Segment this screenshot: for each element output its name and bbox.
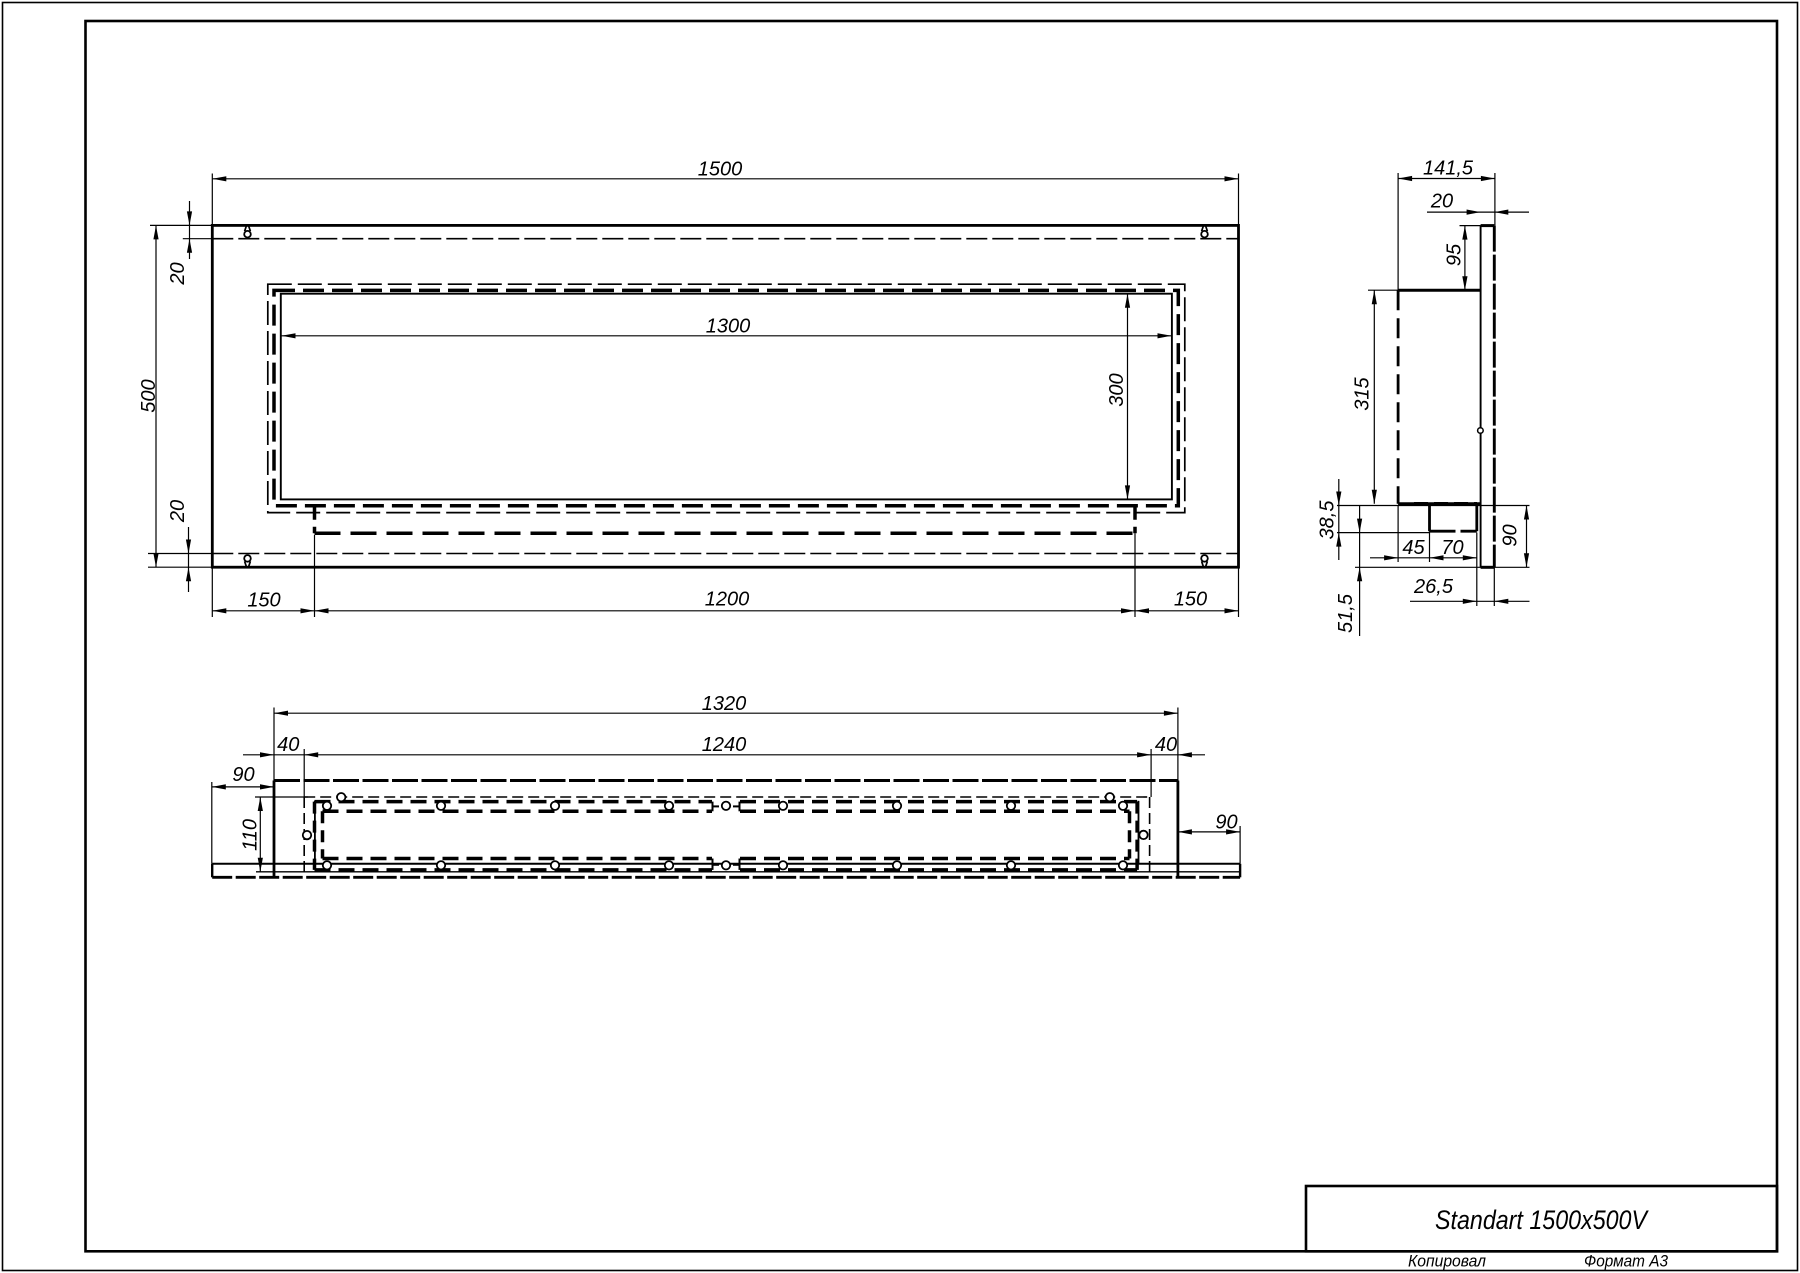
svg-text:90: 90	[1500, 524, 1522, 546]
svg-text:Копировал: Копировал	[1408, 1253, 1486, 1271]
svg-text:40: 40	[1155, 734, 1177, 756]
svg-text:20: 20	[1430, 190, 1453, 212]
svg-text:500: 500	[138, 379, 160, 412]
svg-text:90: 90	[1215, 812, 1237, 834]
svg-text:26,5: 26,5	[1413, 576, 1454, 598]
svg-text:51,5: 51,5	[1335, 593, 1357, 633]
svg-text:1300: 1300	[706, 316, 751, 338]
svg-text:315: 315	[1352, 376, 1374, 410]
svg-text:300: 300	[1106, 373, 1128, 406]
svg-text:70: 70	[1441, 537, 1463, 559]
svg-text:20: 20	[167, 500, 189, 523]
svg-text:150: 150	[247, 590, 280, 612]
svg-text:1320: 1320	[702, 693, 747, 715]
svg-text:150: 150	[1174, 588, 1207, 610]
svg-text:Формат А3: Формат А3	[1584, 1253, 1669, 1271]
svg-text:1500: 1500	[698, 158, 743, 180]
svg-text:45: 45	[1402, 537, 1425, 559]
svg-text:1200: 1200	[705, 588, 750, 610]
svg-text:Standart 1500x500V: Standart 1500x500V	[1435, 1205, 1650, 1235]
svg-text:141,5: 141,5	[1423, 157, 1474, 179]
svg-text:95: 95	[1444, 243, 1466, 266]
svg-text:38,5: 38,5	[1317, 500, 1339, 540]
svg-text:20: 20	[167, 262, 189, 285]
svg-text:90: 90	[232, 764, 254, 786]
svg-text:1240: 1240	[702, 734, 747, 756]
svg-text:40: 40	[277, 734, 299, 756]
svg-text:110: 110	[239, 819, 261, 851]
